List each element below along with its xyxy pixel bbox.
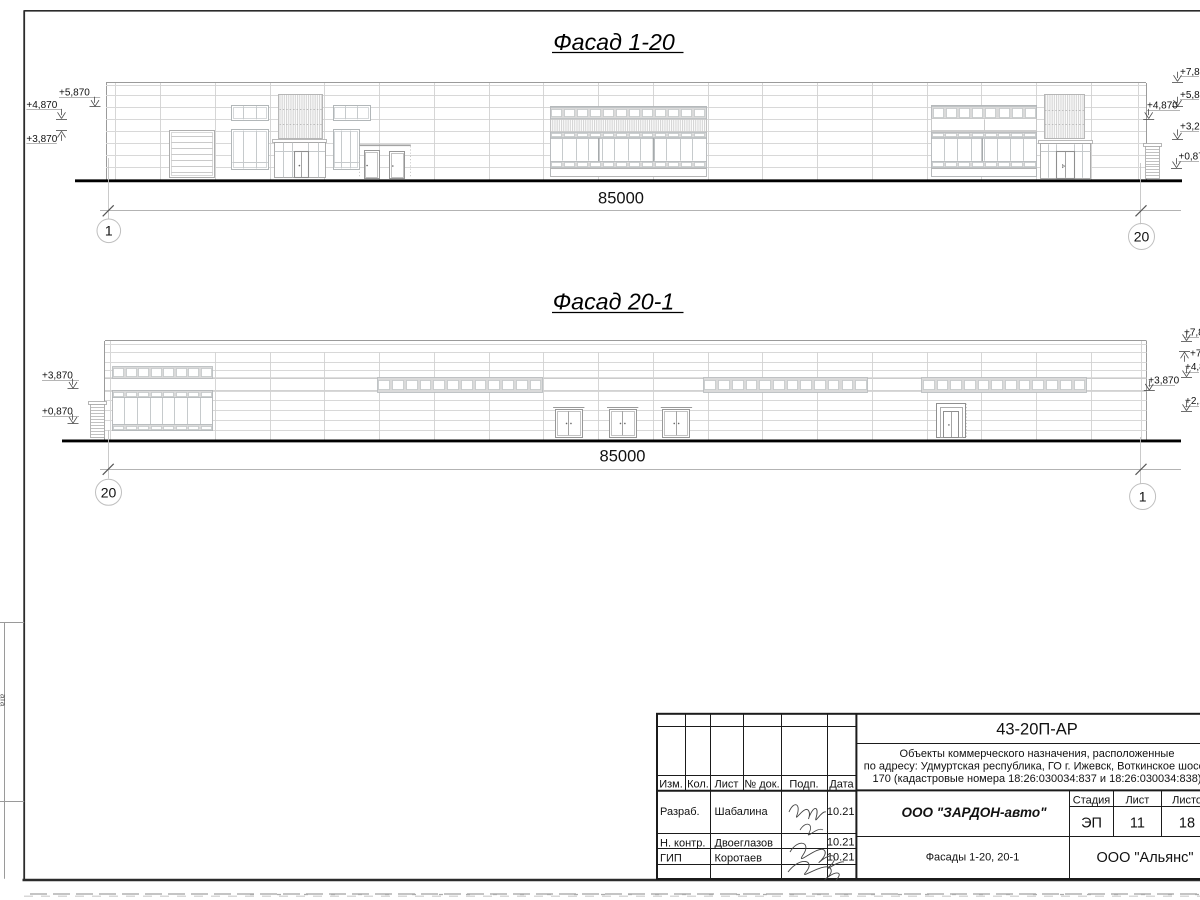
svg-text:20: 20: [1134, 229, 1150, 245]
svg-text:Изм.: Изм.: [659, 779, 683, 791]
svg-text:170 (кадастровые номера 18:26:: 170 (кадастровые номера 18:26:030034:837…: [873, 773, 1200, 785]
svg-text:Двоеглазов: Двоеглазов: [715, 838, 774, 850]
svg-text:+3,270: +3,270: [1180, 121, 1200, 132]
svg-text:№ док.: № док.: [744, 779, 779, 791]
svg-text:18: 18: [1179, 816, 1195, 832]
svg-text:+5,870: +5,870: [59, 87, 90, 98]
svg-text:+3,870: +3,870: [42, 370, 73, 381]
svg-text:ата: ата: [0, 694, 8, 707]
svg-text:Объекты коммерческого назначен: Объекты коммерческого назначения, распол…: [900, 748, 1175, 760]
svg-text:ООО "Альянс": ООО "Альянс": [1097, 850, 1194, 866]
svg-text:Лист: Лист: [715, 779, 739, 791]
svg-text:1: 1: [105, 223, 113, 239]
svg-text:Лист: Лист: [1125, 795, 1149, 807]
svg-text:1: 1: [1139, 489, 1147, 505]
svg-text:85000: 85000: [600, 447, 646, 465]
svg-text:20: 20: [101, 484, 117, 500]
svg-text:Стадия: Стадия: [1073, 795, 1111, 807]
svg-text:10.21: 10.21: [827, 806, 855, 818]
svg-text:+0,870: +0,870: [1179, 152, 1200, 163]
svg-text:ООО "ЗАРДОН-авто": ООО "ЗАРДОН-авто": [901, 805, 1047, 820]
svg-text:Фасад 20-1: Фасад 20-1: [553, 288, 675, 314]
svg-text:Н. контр.: Н. контр.: [660, 838, 705, 850]
svg-text:+0,870: +0,870: [42, 406, 73, 417]
svg-text:11: 11: [1130, 816, 1145, 832]
svg-text:по адресу: Удмуртская республи: по адресу: Удмуртская республика, ГО г. …: [864, 761, 1200, 773]
svg-text:Фасады 1-20, 20-1: Фасады 1-20, 20-1: [926, 852, 1020, 864]
svg-text:Коротаев: Коротаев: [715, 853, 763, 865]
svg-text:+7,070: +7,070: [1190, 348, 1200, 359]
svg-text:+2,170: +2,170: [1185, 396, 1200, 407]
svg-text:Листов: Листов: [1172, 795, 1200, 807]
svg-text:+4,870: +4,870: [1147, 101, 1178, 112]
svg-text:Разраб.: Разраб.: [660, 806, 700, 818]
svg-text:10.21: 10.21: [827, 837, 855, 849]
svg-text:Фасад 1-20: Фасад 1-20: [553, 29, 675, 55]
svg-text:85000: 85000: [598, 190, 644, 208]
svg-text:Подп.: Подп.: [789, 779, 818, 791]
svg-text:+4,870: +4,870: [1185, 362, 1200, 373]
svg-text:Кол.: Кол.: [687, 779, 709, 791]
svg-text:43-20П-АР: 43-20П-АР: [996, 721, 1078, 739]
svg-text:ГИП: ГИП: [660, 853, 682, 865]
svg-text:Дата: Дата: [829, 779, 854, 791]
svg-text:ЭП: ЭП: [1081, 816, 1102, 832]
svg-text:Шабалина: Шабалина: [715, 806, 769, 818]
